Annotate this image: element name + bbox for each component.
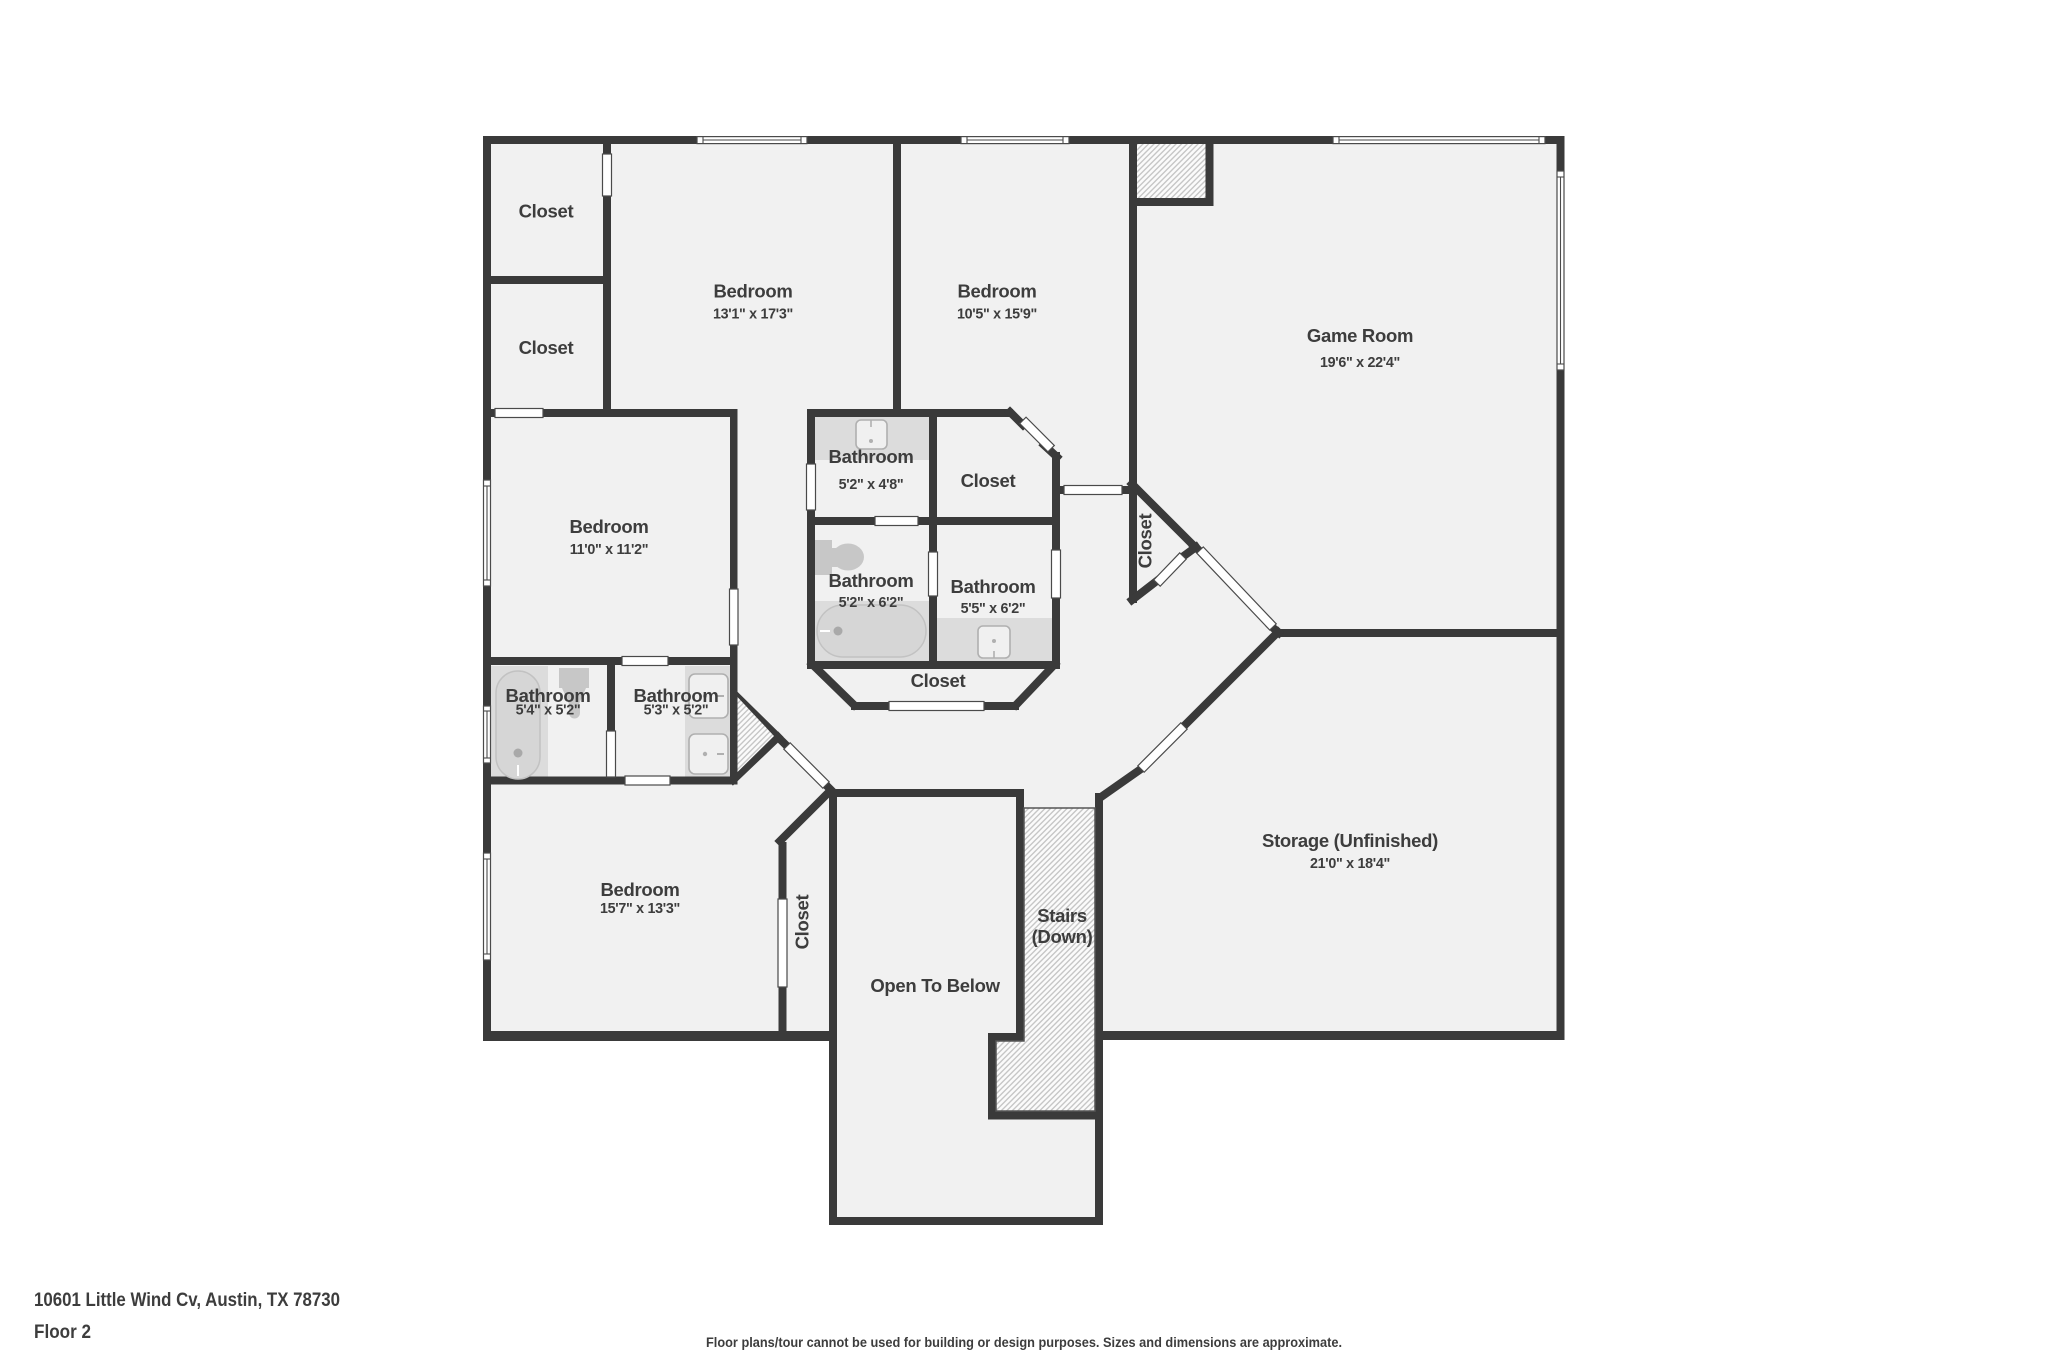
svg-text:Bedroom: Bedroom (600, 879, 679, 900)
svg-text:Closet: Closet (961, 470, 1016, 491)
svg-text:5'2" x 4'8": 5'2" x 4'8" (839, 477, 904, 493)
svg-text:5'4" x 5'2": 5'4" x 5'2" (516, 703, 581, 719)
svg-text:10'5" x 15'9": 10'5" x 15'9" (957, 307, 1037, 323)
svg-text:21'0" x 18'4": 21'0" x 18'4" (1310, 856, 1390, 872)
svg-text:Bathroom: Bathroom (951, 576, 1036, 597)
svg-text:11'0" x 11'2": 11'0" x 11'2" (570, 542, 648, 558)
svg-text:Closet: Closet (519, 337, 574, 358)
svg-text:5'5" x 6'2": 5'5" x 6'2" (961, 601, 1026, 617)
svg-text:Bedroom: Bedroom (569, 516, 648, 537)
svg-text:Floor 2: Floor 2 (34, 1322, 91, 1343)
svg-text:Stairs: Stairs (1037, 905, 1087, 926)
svg-text:Storage (Unfinished): Storage (Unfinished) (1262, 830, 1438, 851)
svg-text:15'7" x 13'3": 15'7" x 13'3" (600, 901, 680, 917)
svg-text:Closet: Closet (911, 670, 966, 691)
svg-text:Bedroom: Bedroom (957, 281, 1036, 302)
svg-text:(Down): (Down) (1032, 926, 1093, 947)
svg-text:Bathroom: Bathroom (829, 446, 914, 467)
svg-text:Bathroom: Bathroom (829, 570, 914, 591)
svg-text:5'3" x 5'2": 5'3" x 5'2" (644, 703, 709, 719)
svg-text:19'6" x 22'4": 19'6" x 22'4" (1320, 355, 1400, 371)
svg-text:Closet: Closet (792, 894, 813, 949)
svg-text:10601 Little Wind Cv, Austin,: 10601 Little Wind Cv, Austin, TX 78730 (34, 1290, 340, 1311)
svg-text:5'2" x 6'2": 5'2" x 6'2" (839, 595, 904, 611)
svg-text:Game Room: Game Room (1307, 325, 1413, 346)
svg-text:Open To Below: Open To Below (870, 975, 1000, 996)
svg-text:Closet: Closet (1135, 513, 1156, 568)
svg-text:Bedroom: Bedroom (713, 281, 792, 302)
svg-text:Floor plans/tour cannot be use: Floor plans/tour cannot be used for buil… (706, 1335, 1342, 1350)
svg-text:Closet: Closet (519, 201, 574, 222)
svg-text:13'1" x 17'3": 13'1" x 17'3" (713, 307, 793, 323)
